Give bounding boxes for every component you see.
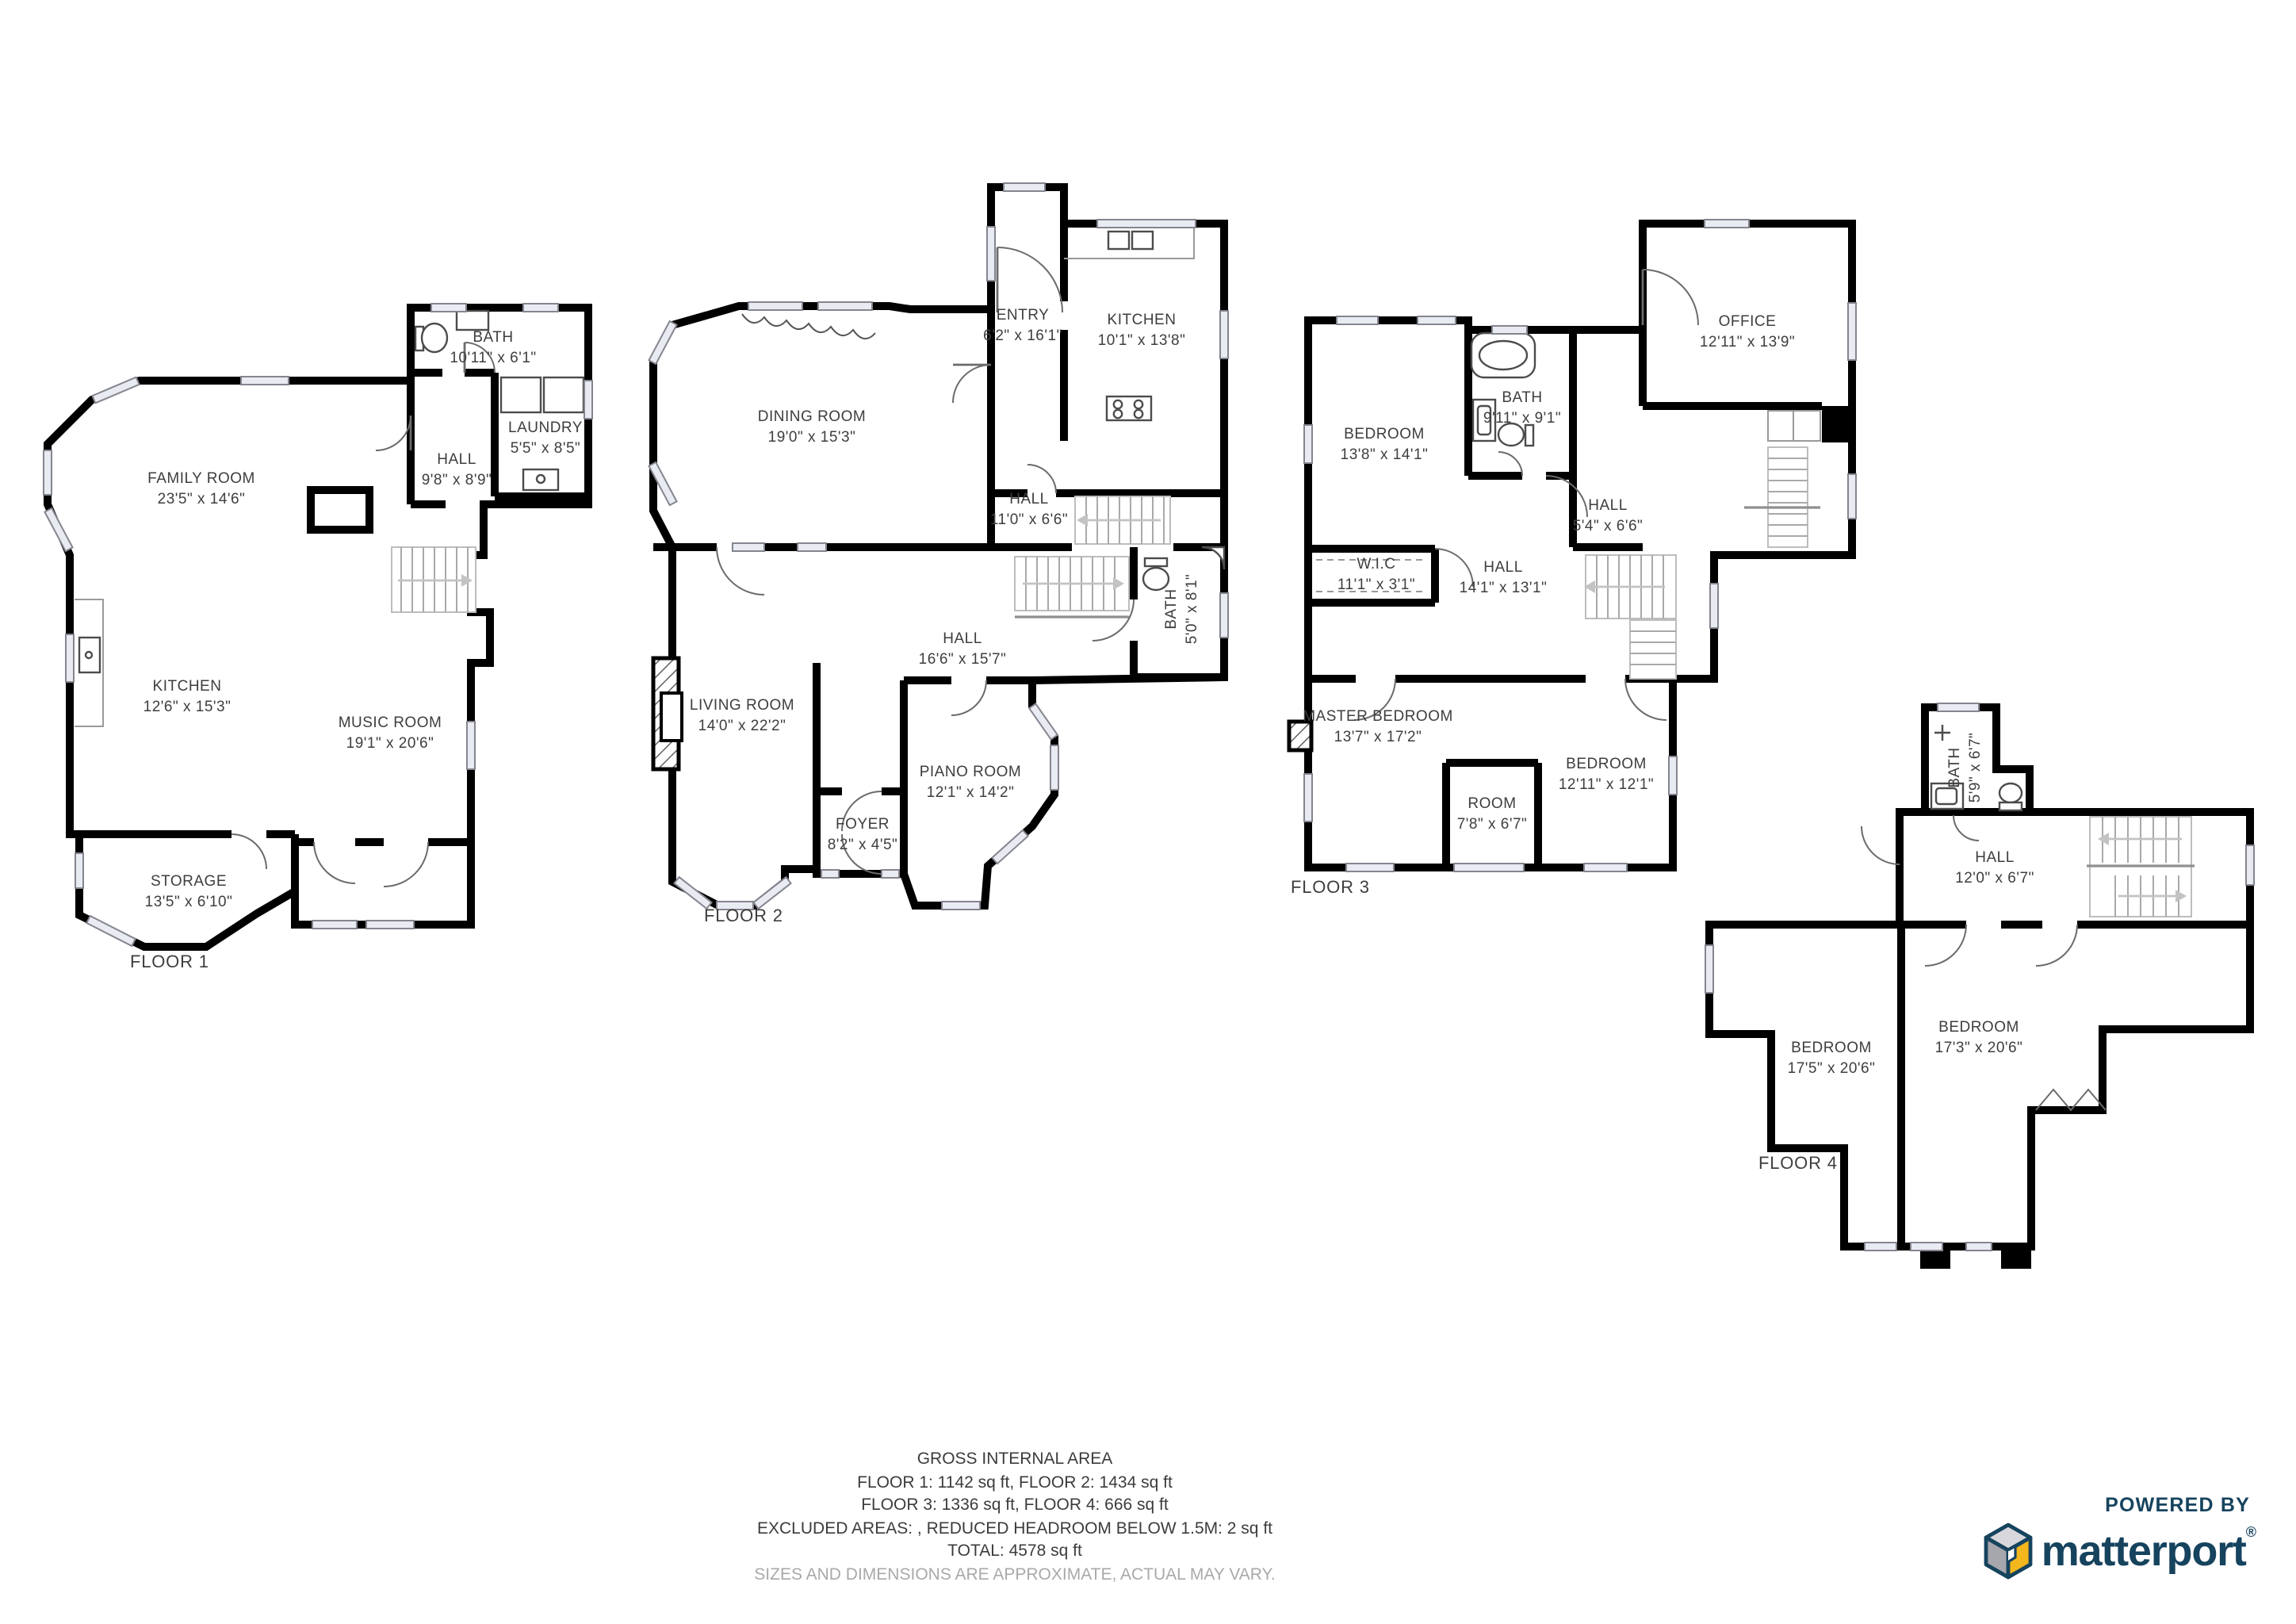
- room-dims: 16'6" x 15'7": [919, 650, 1007, 670]
- room-label-foyer: FOYER 8'2" x 4'5": [828, 816, 898, 856]
- room-name: BATH: [1946, 733, 1966, 803]
- room-label-bath-f1: BATH 10'11" x 6'1": [450, 329, 536, 369]
- footer-disclaimer: SIZES AND DIMENSIONS ARE APPROXIMATE, AC…: [754, 1564, 1275, 1587]
- room-name: DINING ROOM: [758, 408, 866, 428]
- room-dims: 13'7" x 17'2": [1303, 728, 1453, 748]
- room-name: PIANO ROOM: [920, 764, 1022, 783]
- room-label-hall-f1: HALL 9'8" x 8'9": [422, 451, 492, 491]
- room-name: HALL: [1955, 849, 2034, 869]
- room-name: LAUNDRY: [508, 419, 583, 439]
- footer-title: GROSS INTERNAL AREA: [754, 1448, 1275, 1471]
- room-name: HALL: [990, 491, 1068, 511]
- room-name: BEDROOM: [1559, 756, 1654, 776]
- room-dims: 12'11" x 13'9": [1700, 333, 1795, 353]
- room-label-wic: W.I.C 11'1" x 3'1": [1337, 556, 1415, 596]
- room-name: BATH: [450, 329, 536, 349]
- room-label-kitchen-f2: KITCHEN 10'1" x 13'8": [1098, 312, 1186, 351]
- room-dims: 11'1" x 3'1": [1337, 576, 1415, 596]
- room-name: ROOM: [1457, 795, 1528, 815]
- room-name: HALL: [1573, 497, 1644, 517]
- footer-line-3: EXCLUDED AREAS: , REDUCED HEADROOM BELOW…: [754, 1518, 1275, 1541]
- room-label-bath-f3: BATH 9'11" x 9'1": [1483, 389, 1561, 429]
- room-dims: 12'1" x 14'2": [920, 783, 1022, 803]
- room-label-bedroom-f4-1: BEDROOM 17'5" x 20'6": [1788, 1040, 1876, 1079]
- room-label-laundry: LAUNDRY 5'5" x 8'5": [508, 419, 583, 459]
- room-dims: 13'5" x 6'10": [145, 893, 233, 913]
- room-dims: 10'1" x 13'8": [1098, 331, 1186, 351]
- powered-by-text: POWERED BY: [1984, 1496, 2250, 1516]
- room-dims: 12'0" x 6'7": [1955, 869, 2034, 889]
- room-dims: 9'11" x 9'1": [1483, 409, 1561, 429]
- room-dims: 12'11" x 12'1": [1559, 776, 1654, 795]
- room-name: KITCHEN: [143, 678, 232, 698]
- floor-2-label: FLOOR 2: [704, 907, 783, 926]
- room-dims: 19'1" x 20'6": [339, 734, 442, 754]
- room-name: ENTRY: [983, 307, 1062, 327]
- room-label-hall-f2-upper: HALL 11'0" x 6'6": [990, 491, 1068, 530]
- floor-1-plan: [44, 304, 592, 947]
- room-dims: 5'0" x 8'1": [1183, 574, 1203, 645]
- room-label-dining-room: DINING ROOM 19'0" x 15'3": [758, 408, 866, 448]
- room-label-family-room: FAMILY ROOM 23'5" x 14'6": [147, 470, 255, 510]
- floor-4-label: FLOOR 4: [1758, 1155, 1838, 1174]
- room-label-hall-f3-large: HALL 14'1" x 13'1": [1460, 559, 1548, 599]
- room-name: W.I.C: [1337, 556, 1415, 576]
- room-name: BATH: [1163, 574, 1183, 645]
- room-label-hall-f4: HALL 12'0" x 6'7": [1955, 849, 2034, 889]
- room-name: FAMILY ROOM: [147, 470, 255, 490]
- room-dims: 5'4" x 6'6": [1573, 517, 1644, 537]
- room-label-bath-f4: BATH 5'9" x 6'7": [1946, 733, 1986, 803]
- room-label-living-room: LIVING ROOM 14'0" x 22'2": [690, 697, 794, 737]
- room-name: HALL: [1460, 559, 1548, 579]
- floorplan-drawing: [0, 0, 2296, 1624]
- room-label-hall-f3-small: HALL 5'4" x 6'6": [1573, 497, 1644, 537]
- room-label-hall-f2-lower: HALL 16'6" x 15'7": [919, 630, 1007, 670]
- room-dims: 5'5" x 8'5": [508, 439, 583, 459]
- room-name: MUSIC ROOM: [339, 714, 442, 734]
- room-label-master-bedroom: MASTER BEDROOM 13'7" x 17'2": [1303, 708, 1453, 748]
- room-name: STORAGE: [145, 873, 233, 893]
- room-name: BEDROOM: [1935, 1019, 2023, 1039]
- room-dims: 6'2" x 16'1": [983, 327, 1062, 347]
- room-label-bedroom-f3-1: BEDROOM 13'8" x 14'1": [1341, 426, 1429, 465]
- room-name: HALL: [422, 451, 492, 471]
- room-label-storage: STORAGE 13'5" x 6'10": [145, 873, 233, 913]
- footer-line-1: FLOOR 1: 1142 sq ft, FLOOR 2: 1434 sq ft: [754, 1471, 1275, 1494]
- room-label-bedroom-f4-2: BEDROOM 17'3" x 20'6": [1935, 1019, 2023, 1059]
- room-dims: 7'8" x 6'7": [1457, 815, 1528, 835]
- room-dims: 17'5" x 20'6": [1788, 1059, 1876, 1079]
- room-name: KITCHEN: [1098, 312, 1186, 331]
- room-label-office: OFFICE 12'11" x 13'9": [1700, 313, 1795, 353]
- room-name: BEDROOM: [1341, 426, 1429, 446]
- matterport-cube-icon: [1984, 1522, 2034, 1580]
- room-dims: 19'0" x 15'3": [758, 428, 866, 448]
- room-dims: 14'0" x 22'2": [690, 717, 794, 737]
- footer-line-4: TOTAL: 4578 sq ft: [754, 1541, 1275, 1564]
- room-dims: 17'3" x 20'6": [1935, 1039, 2023, 1059]
- floorplan-stage: BATH 10'11" x 6'1" LAUNDRY 5'5" x 8'5" H…: [0, 0, 2296, 1624]
- room-name: OFFICE: [1700, 313, 1795, 333]
- floor-3-label: FLOOR 3: [1291, 879, 1370, 898]
- floor-1-label: FLOOR 1: [130, 953, 209, 972]
- room-dims: 13'8" x 14'1": [1341, 446, 1429, 465]
- room-label-kitchen-f1: KITCHEN 12'6" x 15'3": [143, 678, 232, 718]
- room-name: FOYER: [828, 816, 898, 836]
- room-name: LIVING ROOM: [690, 697, 794, 717]
- room-dims: 8'2" x 4'5": [828, 836, 898, 856]
- registered-mark: ®: [2246, 1526, 2256, 1540]
- gross-internal-area-block: GROSS INTERNAL AREA FLOOR 1: 1142 sq ft,…: [754, 1448, 1275, 1587]
- room-dims: 23'5" x 14'6": [147, 490, 255, 510]
- room-name: BEDROOM: [1788, 1040, 1876, 1059]
- room-label-room: ROOM 7'8" x 6'7": [1457, 795, 1528, 835]
- footer-line-2: FLOOR 3: 1336 sq ft, FLOOR 4: 666 sq ft: [754, 1494, 1275, 1517]
- room-name: HALL: [919, 630, 1007, 650]
- room-label-bedroom-f3-2: BEDROOM 12'11" x 12'1": [1559, 756, 1654, 795]
- room-dims: 11'0" x 6'6": [990, 511, 1068, 530]
- room-name: MASTER BEDROOM: [1303, 708, 1453, 728]
- room-label-music-room: MUSIC ROOM 19'1" x 20'6": [339, 714, 442, 754]
- room-dims: 14'1" x 13'1": [1460, 579, 1548, 599]
- room-name: BATH: [1483, 389, 1561, 409]
- room-label-entry: ENTRY 6'2" x 16'1": [983, 307, 1062, 347]
- matterport-wordmark: matterport: [2042, 1530, 2246, 1572]
- room-dims: 10'11" x 6'1": [450, 349, 536, 369]
- matterport-branding: POWERED BY matterport ®: [1984, 1496, 2256, 1580]
- room-dims: 12'6" x 15'3": [143, 698, 232, 718]
- room-label-bath-f2: BATH 5'0" x 8'1": [1163, 574, 1203, 645]
- room-label-piano-room: PIANO ROOM 12'1" x 14'2": [920, 764, 1022, 803]
- room-dims: 9'8" x 8'9": [422, 471, 492, 491]
- room-dims: 5'9" x 6'7": [1966, 733, 1986, 803]
